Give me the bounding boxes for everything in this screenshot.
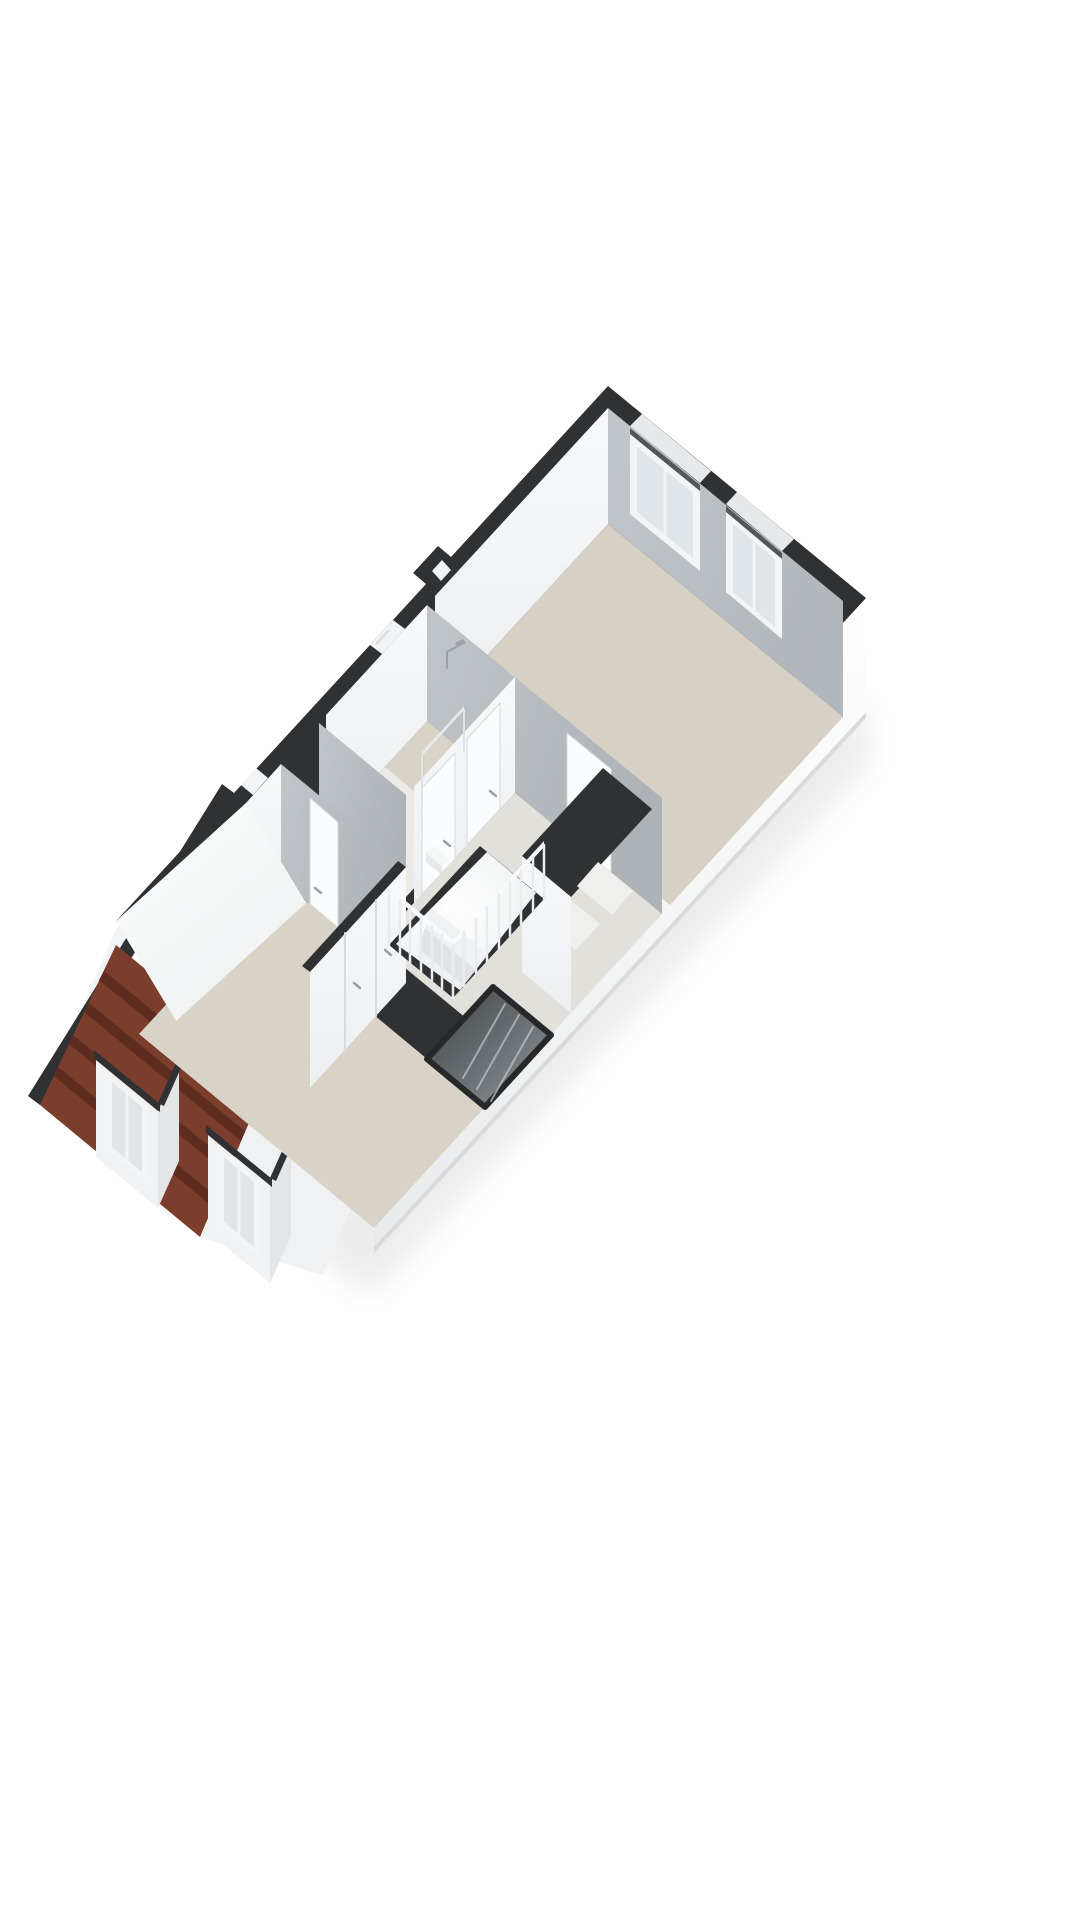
floorplan-elements [28, 386, 872, 1298]
floorplan-3d-render [0, 0, 1080, 1920]
floorplan-viewport [0, 0, 1080, 1920]
